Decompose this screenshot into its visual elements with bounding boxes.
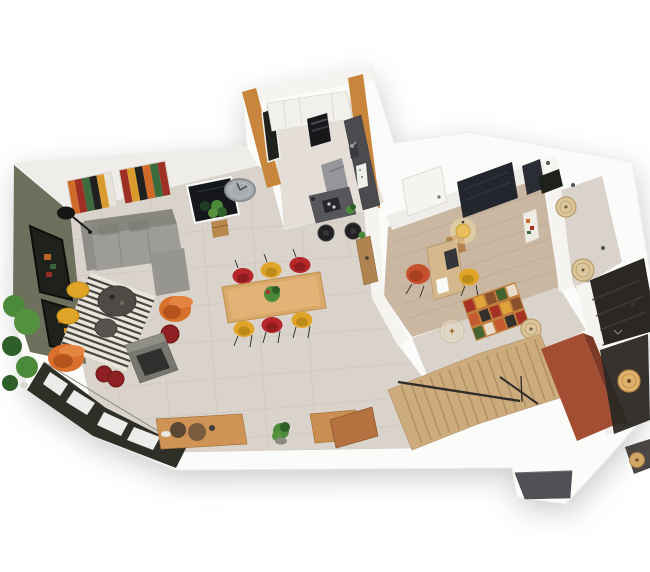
plant — [280, 422, 290, 432]
pendant-core — [530, 328, 533, 331]
bar-stool — [345, 223, 361, 239]
chair-seat — [265, 268, 277, 277]
lamp-shade — [57, 207, 75, 220]
stool-center — [350, 228, 356, 234]
plant-leaves — [208, 208, 218, 218]
chair-seat — [266, 323, 278, 332]
chair-seat — [409, 271, 423, 282]
art-patch — [526, 219, 530, 223]
chair-seat — [163, 305, 181, 319]
plant — [16, 356, 38, 378]
plant — [2, 375, 18, 391]
plant — [2, 336, 22, 356]
sofa-chaise — [150, 248, 190, 296]
art-patch — [527, 231, 531, 234]
yellow-pouf — [67, 282, 89, 298]
wine-pouf — [108, 371, 124, 387]
table-plant-centerpiece — [264, 286, 280, 302]
chair-seat — [296, 318, 308, 327]
decor-bottle — [209, 425, 215, 431]
island-decor — [311, 197, 315, 201]
pendant-core — [627, 379, 631, 383]
rattan-pendant — [572, 259, 594, 281]
plant-pot — [211, 219, 229, 238]
plant-flower — [266, 290, 270, 294]
shelf-item — [46, 272, 52, 277]
chair-seat — [237, 274, 249, 283]
spot — [546, 161, 550, 165]
art-patch — [530, 226, 534, 230]
door-handle — [437, 195, 440, 198]
wood-sideboard — [156, 414, 247, 449]
lamp-base — [88, 230, 92, 234]
spot — [571, 183, 575, 187]
pendant-core — [582, 269, 585, 272]
plant-pot — [275, 438, 287, 445]
appliance-knob — [359, 169, 361, 171]
appliance-knob — [361, 176, 363, 178]
spot — [601, 246, 605, 250]
burner — [327, 202, 330, 205]
round-coffee-table — [98, 286, 136, 316]
console-knob — [365, 256, 369, 260]
glass-bulb-pendant — [440, 319, 464, 343]
apartment-3d-floorplan — [0, 0, 650, 572]
plant — [272, 286, 280, 294]
plant-leaves — [217, 207, 227, 217]
decor-dish — [161, 431, 171, 437]
spiral-pendant-small — [630, 453, 645, 468]
entry-landing — [515, 471, 572, 499]
pendant-core — [635, 458, 638, 461]
pendant-core — [565, 206, 568, 209]
spot — [631, 303, 635, 307]
stool-center — [323, 230, 329, 236]
burner — [332, 205, 335, 208]
round-side-table — [95, 319, 117, 337]
spiral-pendant-lamp — [618, 370, 640, 392]
bar-stool — [318, 225, 334, 241]
table-decor — [110, 295, 115, 300]
round-wall-clock — [225, 179, 255, 201]
chair-seat — [294, 263, 306, 272]
decor-bowl — [170, 422, 186, 438]
chair-seat — [53, 354, 73, 368]
rattan-pendant — [556, 197, 576, 217]
lamp-disc — [456, 224, 470, 238]
gray-landing-step — [515, 471, 572, 499]
mirror-reflection — [200, 201, 210, 211]
chair-seat — [238, 327, 250, 336]
stool-top — [462, 275, 474, 284]
plant-pot — [20, 382, 28, 388]
floorplan-svg — [0, 0, 650, 572]
pendant-core — [451, 330, 454, 333]
hall-framed-art — [523, 209, 539, 243]
lamp-cord — [462, 221, 465, 224]
built-in-oven-column — [307, 113, 331, 147]
shelf-item — [44, 254, 51, 260]
paper-sheet — [436, 277, 449, 294]
island-plant — [350, 204, 356, 210]
table-top — [98, 286, 136, 316]
plant — [14, 309, 40, 335]
glowing-pendant-lamp — [450, 218, 476, 244]
table-decor — [120, 301, 124, 305]
console-plant — [359, 232, 366, 239]
yellow-pouf — [57, 308, 79, 324]
shelf-item — [50, 264, 56, 269]
decor-bowl — [188, 423, 206, 441]
